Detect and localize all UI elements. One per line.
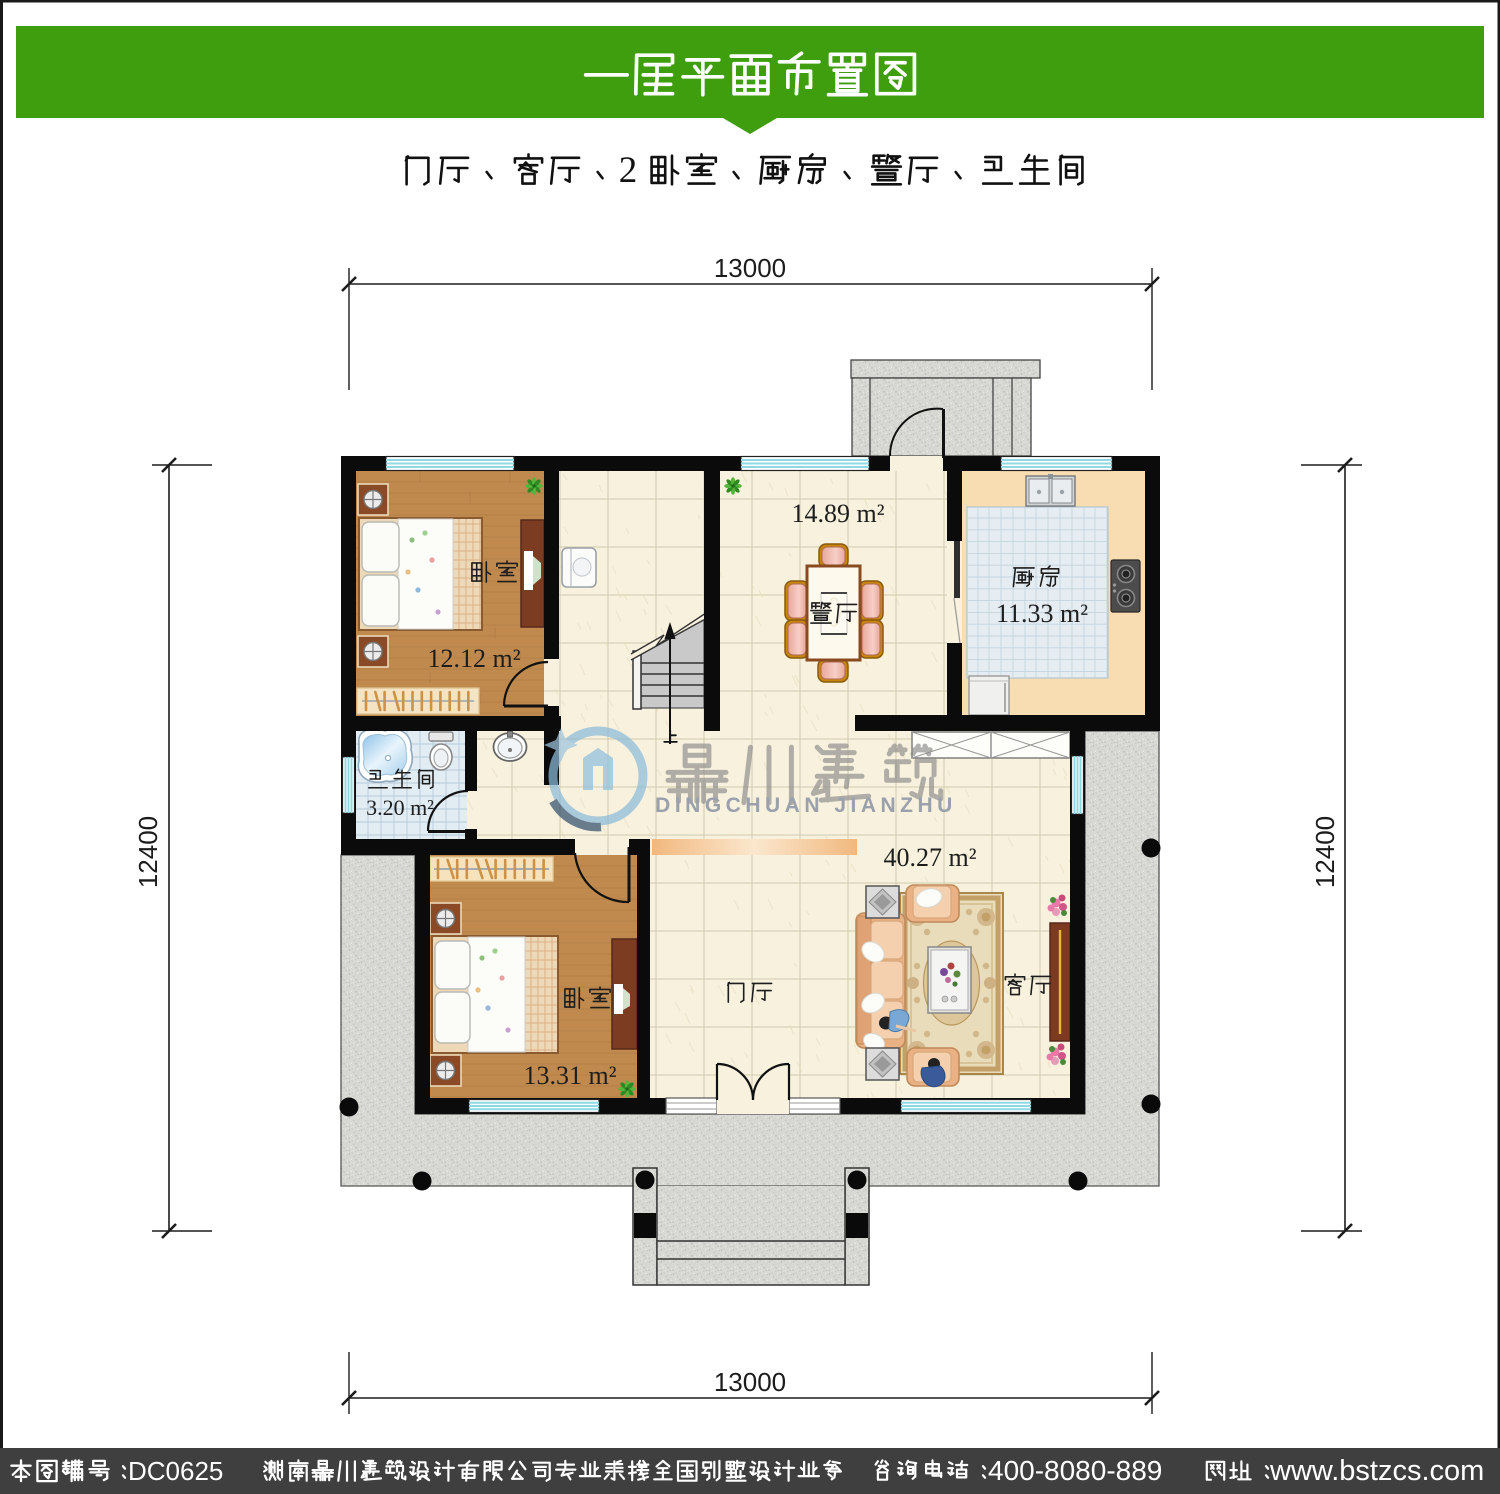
svg-text:13000: 13000 xyxy=(714,1367,786,1397)
svg-text:DINGCHUAN JIANZHU: DINGCHUAN JIANZHU xyxy=(655,794,957,817)
svg-text:13.31 m²: 13.31 m² xyxy=(523,1061,616,1090)
svg-text:3.20 m²: 3.20 m² xyxy=(366,795,434,820)
svg-text:400-8080-889: 400-8080-889 xyxy=(988,1455,1162,1486)
svg-text:2: 2 xyxy=(619,150,638,191)
svg-text:12400: 12400 xyxy=(1310,816,1340,888)
svg-text:www.bstzcs.com: www.bstzcs.com xyxy=(1269,1455,1484,1487)
svg-text:11.33 m²: 11.33 m² xyxy=(996,599,1088,628)
svg-text:12.12 m²: 12.12 m² xyxy=(427,644,520,673)
svg-text:40.27 m²: 40.27 m² xyxy=(883,843,976,872)
svg-text:14.89 m²: 14.89 m² xyxy=(791,499,884,528)
svg-text:12400: 12400 xyxy=(133,816,163,888)
svg-text:DC0625: DC0625 xyxy=(128,1456,223,1486)
svg-text:13000: 13000 xyxy=(714,253,786,283)
